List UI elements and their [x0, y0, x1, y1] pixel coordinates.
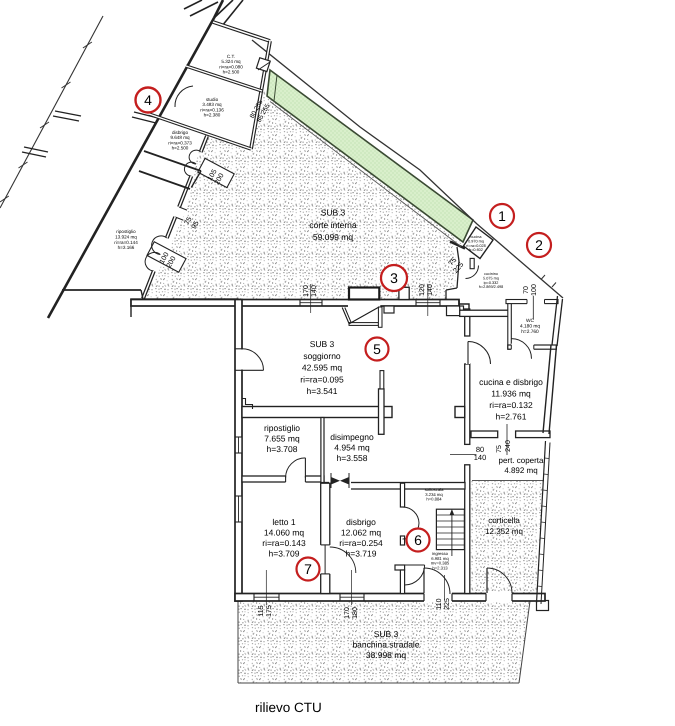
- svg-text:110: 110: [436, 598, 443, 609]
- svg-text:7: 7: [304, 561, 312, 577]
- svg-text:3: 3: [390, 270, 398, 286]
- svg-text:70: 70: [523, 286, 530, 294]
- svg-text:WC4.180 mqh=2.760: WC4.180 mqh=2.760: [520, 318, 540, 335]
- svg-text:disbrigo9.648 mqri=ra=0.373h=2: disbrigo9.648 mqri=ra=0.373h=2.500: [168, 130, 192, 151]
- svg-text:2: 2: [535, 237, 543, 253]
- svg-text:5: 5: [373, 341, 381, 357]
- svg-text:170: 170: [344, 607, 351, 619]
- svg-text:75: 75: [496, 445, 503, 453]
- svg-text:sottoscala3.234 mqh=0.884: sottoscala3.234 mqh=0.884: [425, 487, 445, 502]
- svg-text:C.T.5.324 mqri=ra=0.080h=2.500: C.T.5.324 mqri=ra=0.080h=2.500: [219, 54, 243, 75]
- svg-text:studio3.483 mqri=ra=0.136h=2.3: studio3.483 mqri=ra=0.136h=2.380: [200, 97, 224, 118]
- svg-text:pert. coperta4.892 mq: pert. coperta4.892 mq: [499, 456, 544, 475]
- svg-text:cucinino5.075 mqip=0.332h=2.86: cucinino5.075 mqip=0.332h=2.869/2.498: [479, 272, 503, 289]
- svg-text:cucina e disbrigo11.936 mqri=r: cucina e disbrigo11.936 mqri=ra=0.132h=2…: [479, 377, 543, 422]
- svg-text:240: 240: [505, 440, 512, 452]
- svg-text:100: 100: [531, 284, 538, 296]
- svg-text:180: 180: [352, 607, 359, 619]
- svg-text:1: 1: [498, 208, 506, 224]
- svg-text:115: 115: [258, 605, 265, 616]
- svg-text:ripostiglio13.924 mqri=ra=0.14: ripostiglio13.924 mqri=ra=0.144h=3.166: [114, 229, 138, 250]
- svg-text:SUB 3soggiorno42.595 mqri=ra=0: SUB 3soggiorno42.595 mqri=ra=0.095h=3.54…: [300, 339, 344, 396]
- svg-text:ingresso6.981 mqmv=0.385h=2.31: ingresso6.981 mqmv=0.385h=2.313: [431, 551, 450, 570]
- svg-text:6: 6: [414, 532, 422, 548]
- svg-text:rilievo CTU: rilievo CTU: [255, 700, 322, 715]
- svg-text:175: 175: [266, 605, 273, 617]
- svg-text:disimpegno4.954 mqh=3.558: disimpegno4.954 mqh=3.558: [330, 432, 374, 463]
- svg-text:225: 225: [444, 598, 451, 610]
- svg-text:170: 170: [303, 285, 310, 297]
- svg-text:140: 140: [311, 285, 318, 297]
- svg-text:120: 120: [419, 284, 426, 296]
- svg-text:ripostiglio7.655 mqh=3.708: ripostiglio7.655 mqh=3.708: [264, 423, 300, 454]
- svg-text:disbrigo12.062 mqri=ra=0.254h=: disbrigo12.062 mqri=ra=0.254h=3.719: [339, 517, 383, 559]
- svg-text:4: 4: [144, 92, 152, 108]
- svg-text:140: 140: [474, 453, 487, 462]
- svg-text:letto 114.060 mqri=ra=0.143h=3: letto 114.060 mqri=ra=0.143h=3.709: [262, 517, 306, 559]
